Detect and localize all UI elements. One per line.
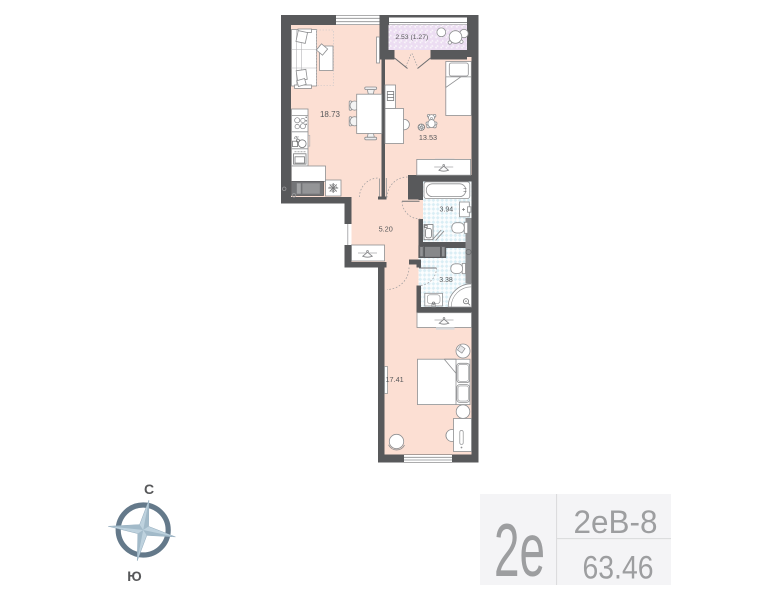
svg-text:17.41: 17.41 <box>385 375 403 384</box>
svg-text:С: С <box>144 481 154 497</box>
svg-text:3.38: 3.38 <box>439 277 453 284</box>
svg-text:2е: 2е <box>494 508 545 592</box>
svg-text:5.20: 5.20 <box>379 225 393 234</box>
svg-text:2.53 (1.27): 2.53 (1.27) <box>395 34 428 41</box>
svg-text:18.73: 18.73 <box>320 110 341 119</box>
svg-text:13.53: 13.53 <box>419 133 437 142</box>
svg-text:63.46: 63.46 <box>583 550 654 586</box>
svg-text:2еВ-8: 2еВ-8 <box>574 504 658 540</box>
svg-text:Ю: Ю <box>127 568 141 584</box>
svg-text:3.94: 3.94 <box>439 206 453 213</box>
